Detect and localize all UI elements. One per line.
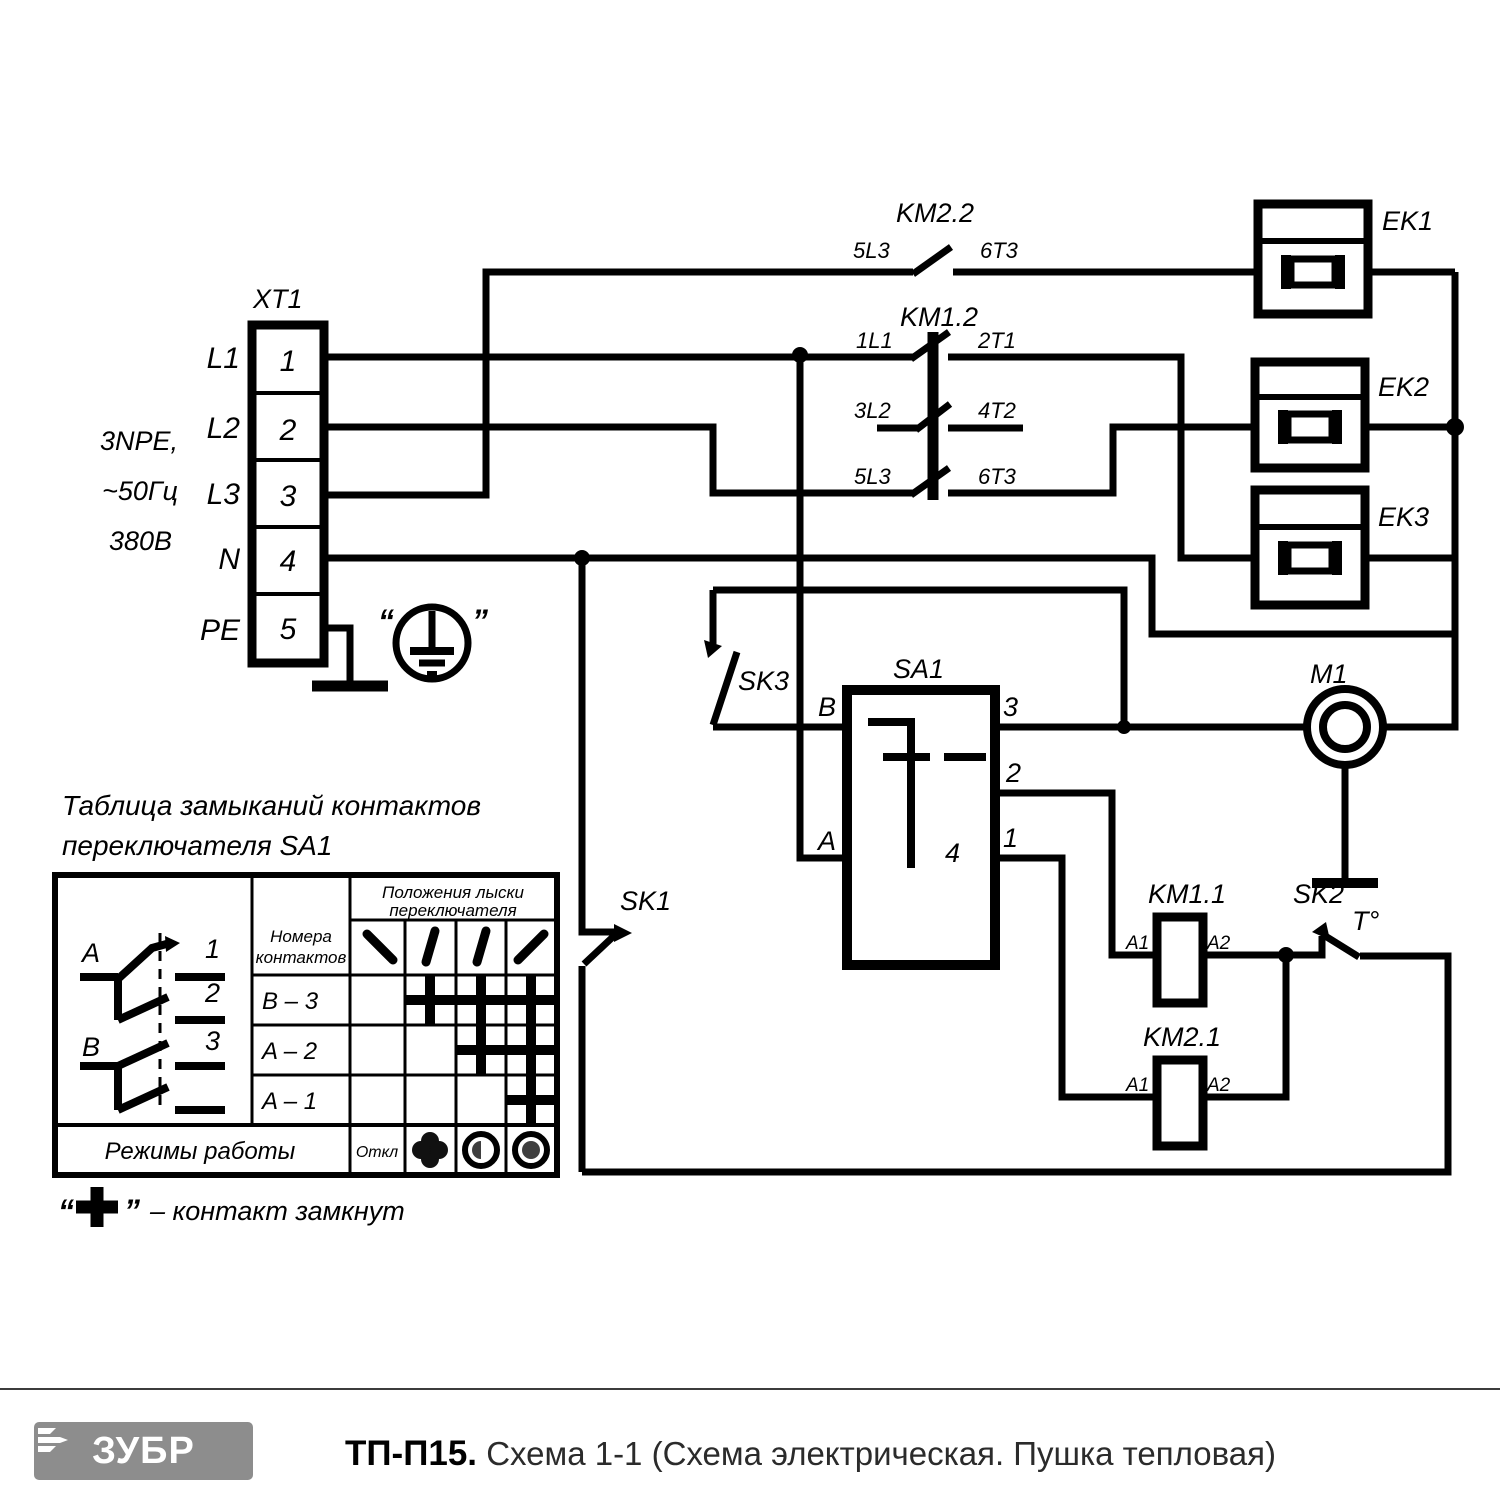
footer-divider <box>0 1388 1500 1390</box>
diagram-contact-3: 3 <box>205 1026 220 1056</box>
sk1-blade <box>584 934 616 964</box>
mode-half-heat-icon <box>465 1134 497 1166</box>
line-label-l1: L1 <box>207 342 240 375</box>
wire <box>1383 272 1455 727</box>
supply-spec: ~50Гц <box>102 476 178 506</box>
diagram-contact-1: 1 <box>205 934 220 964</box>
supply-spec: 380В <box>109 526 172 556</box>
table-row-name: A – 2 <box>260 1038 317 1065</box>
legend-quote-open: “ <box>58 1193 74 1229</box>
line-label-l3: L3 <box>207 478 241 511</box>
brand-name: ЗУБР <box>92 1430 195 1473</box>
line-label-l2: L2 <box>207 412 241 445</box>
km22-contact-blade <box>913 247 951 274</box>
km12-pole2-out: 4T2 <box>978 398 1016 423</box>
legend-plus-icon <box>76 1187 118 1227</box>
zubr-arrow-icon <box>34 1422 70 1458</box>
footer-caption: ТП-П15. Схема 1-1 (Схема электрическая. … <box>345 1434 1276 1474</box>
junction-dot <box>1446 418 1464 436</box>
sa1-terminal-4: 4 <box>945 838 960 868</box>
xt1-label: XT1 <box>252 284 303 314</box>
heater-ek1: EK1 <box>1258 204 1433 314</box>
heater-ek3: EK3 <box>1255 490 1429 605</box>
table-title-line2: переключателя SA1 <box>62 830 332 861</box>
xt1-block: XT1 1 2 3 4 5 L1 L2 L3 N PE 3NPE, ~50Гц … <box>100 284 324 663</box>
sa1-terminal-a: A <box>816 826 836 856</box>
earth-quote-right: ” <box>472 603 488 639</box>
wire <box>582 956 1448 1172</box>
sa1-terminal-1: 1 <box>1003 823 1018 853</box>
wire <box>995 793 1157 955</box>
km12-pole2-in: 3L2 <box>854 398 891 423</box>
sk2-temp-label: T° <box>1352 906 1379 936</box>
legend-quote-close: ” <box>124 1193 140 1229</box>
km12-label: KM1.2 <box>900 302 978 332</box>
ek1-label: EK1 <box>1382 206 1433 236</box>
km12-pole1-in: 1L1 <box>856 328 893 353</box>
col-header-contacts: контактов <box>256 948 347 967</box>
line-label-pe: PE <box>200 614 241 647</box>
km21-a1: A1 <box>1125 1075 1149 1096</box>
earth-symbol-icon: “ ” <box>378 603 488 679</box>
ek2-label: EK2 <box>1378 372 1429 402</box>
sk3-label: SK3 <box>738 666 789 696</box>
circuit-diagram: XT1 1 2 3 4 5 L1 L2 L3 N PE 3NPE, ~50Гц … <box>0 0 1500 1390</box>
diagram-a-label: A <box>80 938 100 968</box>
table-title-line1: Таблица замыканий контактов <box>62 790 481 821</box>
xt1-terminal-number: 1 <box>280 345 297 378</box>
xt1-terminal-number: 4 <box>280 545 297 578</box>
km22-label: KM2.2 <box>896 198 974 228</box>
km21-a2: A2 <box>1206 1075 1231 1096</box>
col-header-positions: Положения лыски <box>382 883 524 902</box>
sa1-contact-table: Таблица замыканий контактов переключател… <box>55 790 557 1229</box>
sa1-label: SA1 <box>893 654 944 684</box>
heater-ek2: EK2 <box>1255 362 1429 468</box>
xt1-terminal-number: 5 <box>280 613 297 646</box>
sk2-label: SK2 <box>1293 879 1344 909</box>
motor-m1: M1 <box>1307 659 1383 765</box>
mode-full-heat-icon <box>515 1134 547 1166</box>
km11-coil: KM1.1 A1 A2 <box>1125 879 1231 1003</box>
table-row-name: A – 1 <box>260 1088 317 1115</box>
diagram-contact-2: 2 <box>204 978 220 1008</box>
table-row-name: B – 3 <box>262 988 319 1015</box>
table-legend: “ ” – контакт замкнут <box>58 1187 405 1229</box>
km12-pole1-out: 2T1 <box>977 328 1016 353</box>
junction-dot <box>1117 720 1131 734</box>
junction-dot <box>1278 947 1294 963</box>
sa1-terminal-b: B <box>818 692 836 722</box>
mode-off-label: Откл <box>356 1144 398 1161</box>
km11-a1: A1 <box>1125 933 1149 954</box>
modes-row-label: Режимы работы <box>105 1138 296 1165</box>
m1-label: M1 <box>1310 659 1348 689</box>
sk1-pivot-arrow <box>614 924 632 942</box>
schematic-page: XT1 1 2 3 4 5 L1 L2 L3 N PE 3NPE, ~50Гц … <box>0 0 1500 1500</box>
xt1-terminal-number: 2 <box>279 414 297 447</box>
km21-coil: KM2.1 A1 A2 <box>1125 1022 1231 1146</box>
km12-pole3-in: 5L3 <box>854 464 891 489</box>
col-header-contacts: Номера <box>270 927 332 946</box>
wire <box>800 353 847 858</box>
earth-quote-left: “ <box>378 603 394 639</box>
diagram-b-label: B <box>82 1032 100 1062</box>
col-header-positions: переключателя <box>389 901 516 920</box>
line-label-n: N <box>218 543 240 576</box>
km11-label: KM1.1 <box>1148 879 1226 909</box>
model-number: ТП-П15. <box>345 1434 477 1473</box>
km21-label: KM2.1 <box>1143 1022 1221 1052</box>
xt1-terminal-number: 3 <box>280 480 297 513</box>
sa1-terminal-3: 3 <box>1003 692 1018 722</box>
sa1-switch: SA1 B A 3 2 1 4 <box>816 654 1021 965</box>
legend-text: – контакт замкнут <box>149 1196 405 1226</box>
wire <box>322 427 913 493</box>
wire <box>995 858 1157 1097</box>
wire <box>322 272 913 495</box>
brand-logo: ЗУБР <box>34 1422 253 1480</box>
km11-a2: A2 <box>1206 933 1231 954</box>
wire <box>948 357 1255 558</box>
caption-text: Схема 1-1 (Схема электрическая. Пушка те… <box>486 1435 1276 1472</box>
sk3-blade <box>713 652 737 725</box>
km12-pole3-out: 6T3 <box>978 464 1017 489</box>
supply-spec: 3NPE, <box>100 426 178 456</box>
sa1-terminal-2: 2 <box>1005 758 1021 788</box>
junction-dot <box>792 347 808 363</box>
km22-out-label: 6T3 <box>980 238 1019 263</box>
wire <box>582 558 616 932</box>
ek3-label: EK3 <box>1378 502 1429 532</box>
sk1-label: SK1 <box>620 886 671 916</box>
junction-dot <box>574 550 590 566</box>
km22-in-label: 5L3 <box>853 238 890 263</box>
